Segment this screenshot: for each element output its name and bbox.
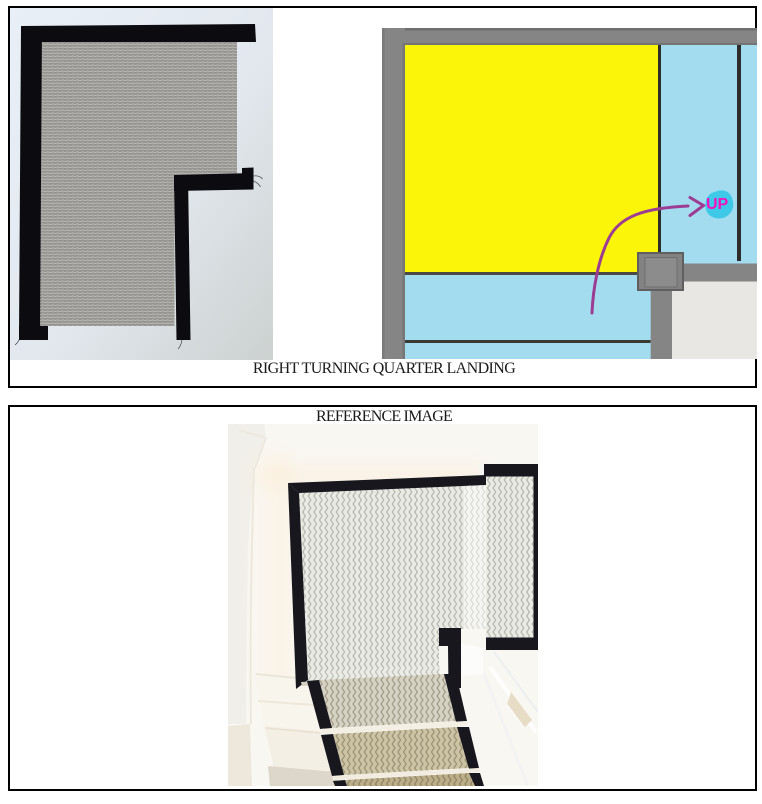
svg-text:UP: UP [706,196,729,213]
